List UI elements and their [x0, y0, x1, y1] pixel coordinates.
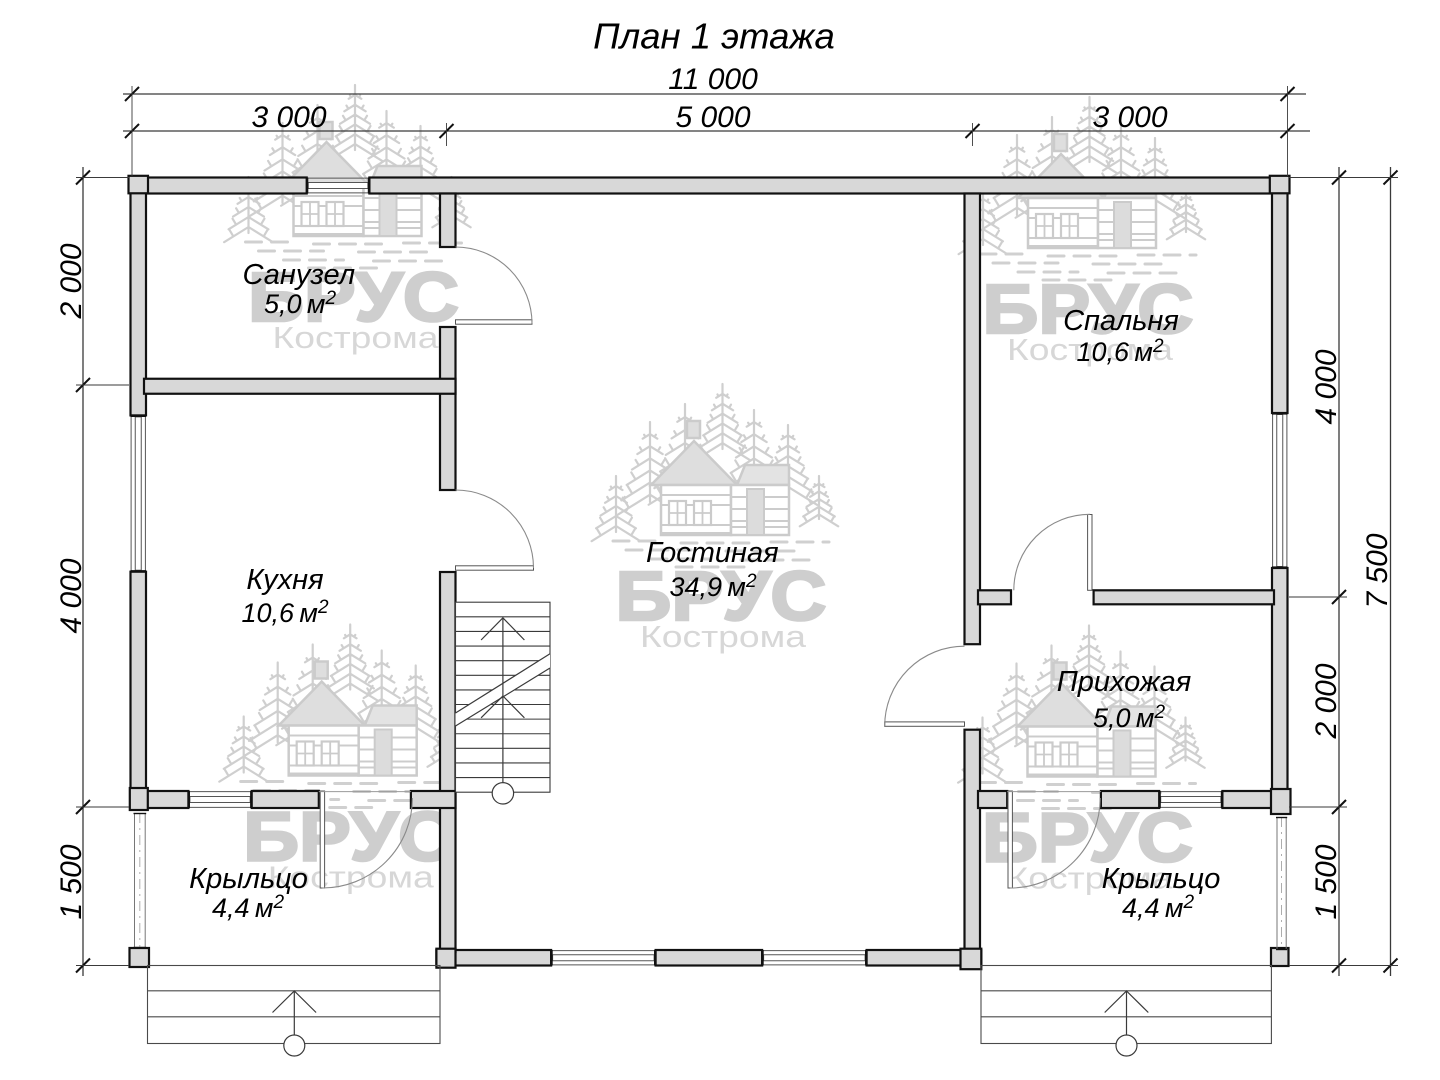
svg-text:2 000: 2 000	[55, 243, 88, 319]
svg-text:11 000: 11 000	[668, 63, 758, 96]
svg-text:10,6 м2: 10,6 м2	[1076, 336, 1163, 367]
svg-text:10,6 м2: 10,6 м2	[241, 597, 328, 628]
svg-text:Прихожая: Прихожая	[1057, 666, 1192, 698]
svg-text:Спальня: Спальня	[1063, 305, 1179, 337]
svg-text:7 500: 7 500	[1361, 533, 1394, 608]
svg-text:Крыльцо: Крыльцо	[1102, 863, 1221, 895]
svg-text:2 000: 2 000	[1310, 663, 1343, 739]
svg-text:34,9 м2: 34,9 м2	[669, 571, 756, 602]
svg-text:Санузел: Санузел	[243, 259, 356, 291]
svg-text:4 000: 4 000	[1310, 349, 1343, 424]
svg-text:3 000: 3 000	[251, 101, 326, 134]
svg-text:5 000: 5 000	[675, 101, 750, 134]
svg-text:Гостиная: Гостиная	[646, 537, 779, 569]
svg-text:Кухня: Кухня	[246, 564, 323, 596]
svg-text:1 500: 1 500	[55, 844, 88, 919]
svg-text:1 500: 1 500	[1310, 844, 1343, 919]
svg-text:Крыльцо: Крыльцо	[189, 863, 308, 895]
svg-text:3 000: 3 000	[1092, 101, 1167, 134]
svg-text:4 000: 4 000	[55, 558, 88, 633]
svg-text:План 1 этажа: План 1 этажа	[593, 16, 835, 57]
